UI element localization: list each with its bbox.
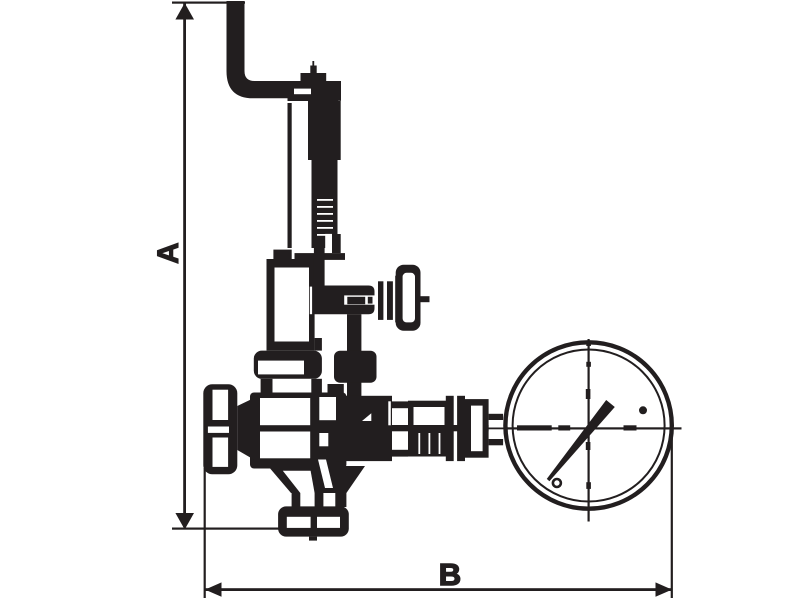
svg-text:B: B (439, 557, 461, 592)
svg-text:A: A (152, 242, 185, 264)
